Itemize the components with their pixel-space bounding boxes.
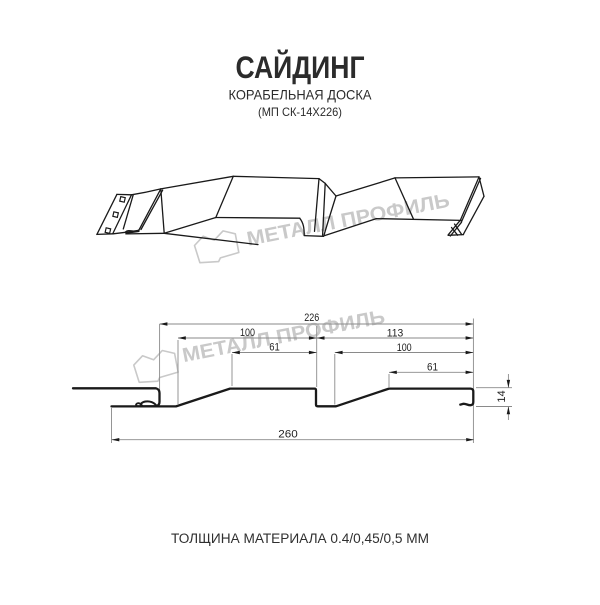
svg-text:61: 61	[269, 342, 280, 354]
svg-text:61: 61	[427, 362, 438, 374]
svg-text:САЙДИНГ: САЙДИНГ	[236, 49, 365, 85]
svg-text:14: 14	[496, 390, 508, 402]
svg-text:ТОЛЩИНА МАТЕРИАЛА 0.4/0,45/0,5: ТОЛЩИНА МАТЕРИАЛА 0.4/0,45/0,5 ММ	[171, 531, 429, 547]
svg-text:260: 260	[278, 429, 298, 441]
svg-text:(МП СК-14Х226): (МП СК-14Х226)	[258, 105, 342, 119]
svg-text:226: 226	[304, 312, 319, 324]
svg-text:100: 100	[397, 342, 412, 354]
svg-text:100: 100	[240, 327, 255, 339]
svg-text:КОРАБЕЛЬНАЯ ДОСКА: КОРАБЕЛЬНАЯ ДОСКА	[229, 88, 373, 103]
svg-text:113: 113	[387, 328, 404, 340]
